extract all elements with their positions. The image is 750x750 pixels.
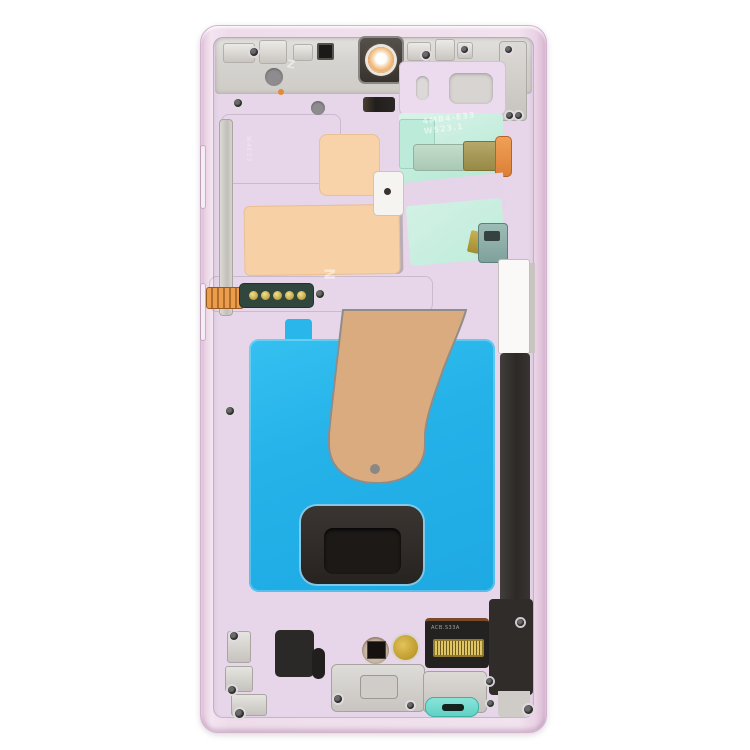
connector-marking: ACB.S33A	[431, 625, 460, 631]
screw	[334, 695, 342, 703]
photo-canvas: Z W4E23 4MB4-E33 W523.1 N	[0, 0, 750, 750]
loudspeaker-box	[275, 630, 314, 677]
board-connector-flex: ACB.S33A	[425, 618, 489, 668]
screw	[228, 686, 236, 694]
screw	[486, 678, 493, 685]
midframe-outer-frame: Z W4E23 4MB4-E33 W523.1 N	[200, 25, 547, 733]
spen-cap-teal	[425, 697, 479, 717]
contact-disc-gold	[393, 635, 418, 660]
screw	[487, 700, 494, 707]
b2b-connector	[433, 639, 484, 657]
screw	[316, 290, 324, 298]
speaker-mesh-pad	[301, 506, 423, 584]
spen-silo-lower	[489, 599, 533, 695]
screw	[524, 705, 533, 714]
screw	[250, 48, 258, 56]
screw	[226, 407, 234, 415]
screw	[422, 51, 430, 59]
screw	[461, 46, 468, 53]
screw	[517, 619, 524, 626]
ribbon-end-dot	[370, 464, 380, 474]
screw	[515, 112, 522, 119]
screw	[230, 632, 238, 640]
speaker-mesh-inner	[324, 528, 401, 574]
screw	[506, 112, 513, 119]
screw	[407, 702, 414, 709]
spen-silo-label	[498, 259, 530, 354]
foam-gasket	[312, 648, 325, 679]
screw	[505, 46, 512, 53]
mic-hole	[362, 637, 389, 664]
screw	[234, 99, 242, 107]
screw	[235, 709, 244, 718]
